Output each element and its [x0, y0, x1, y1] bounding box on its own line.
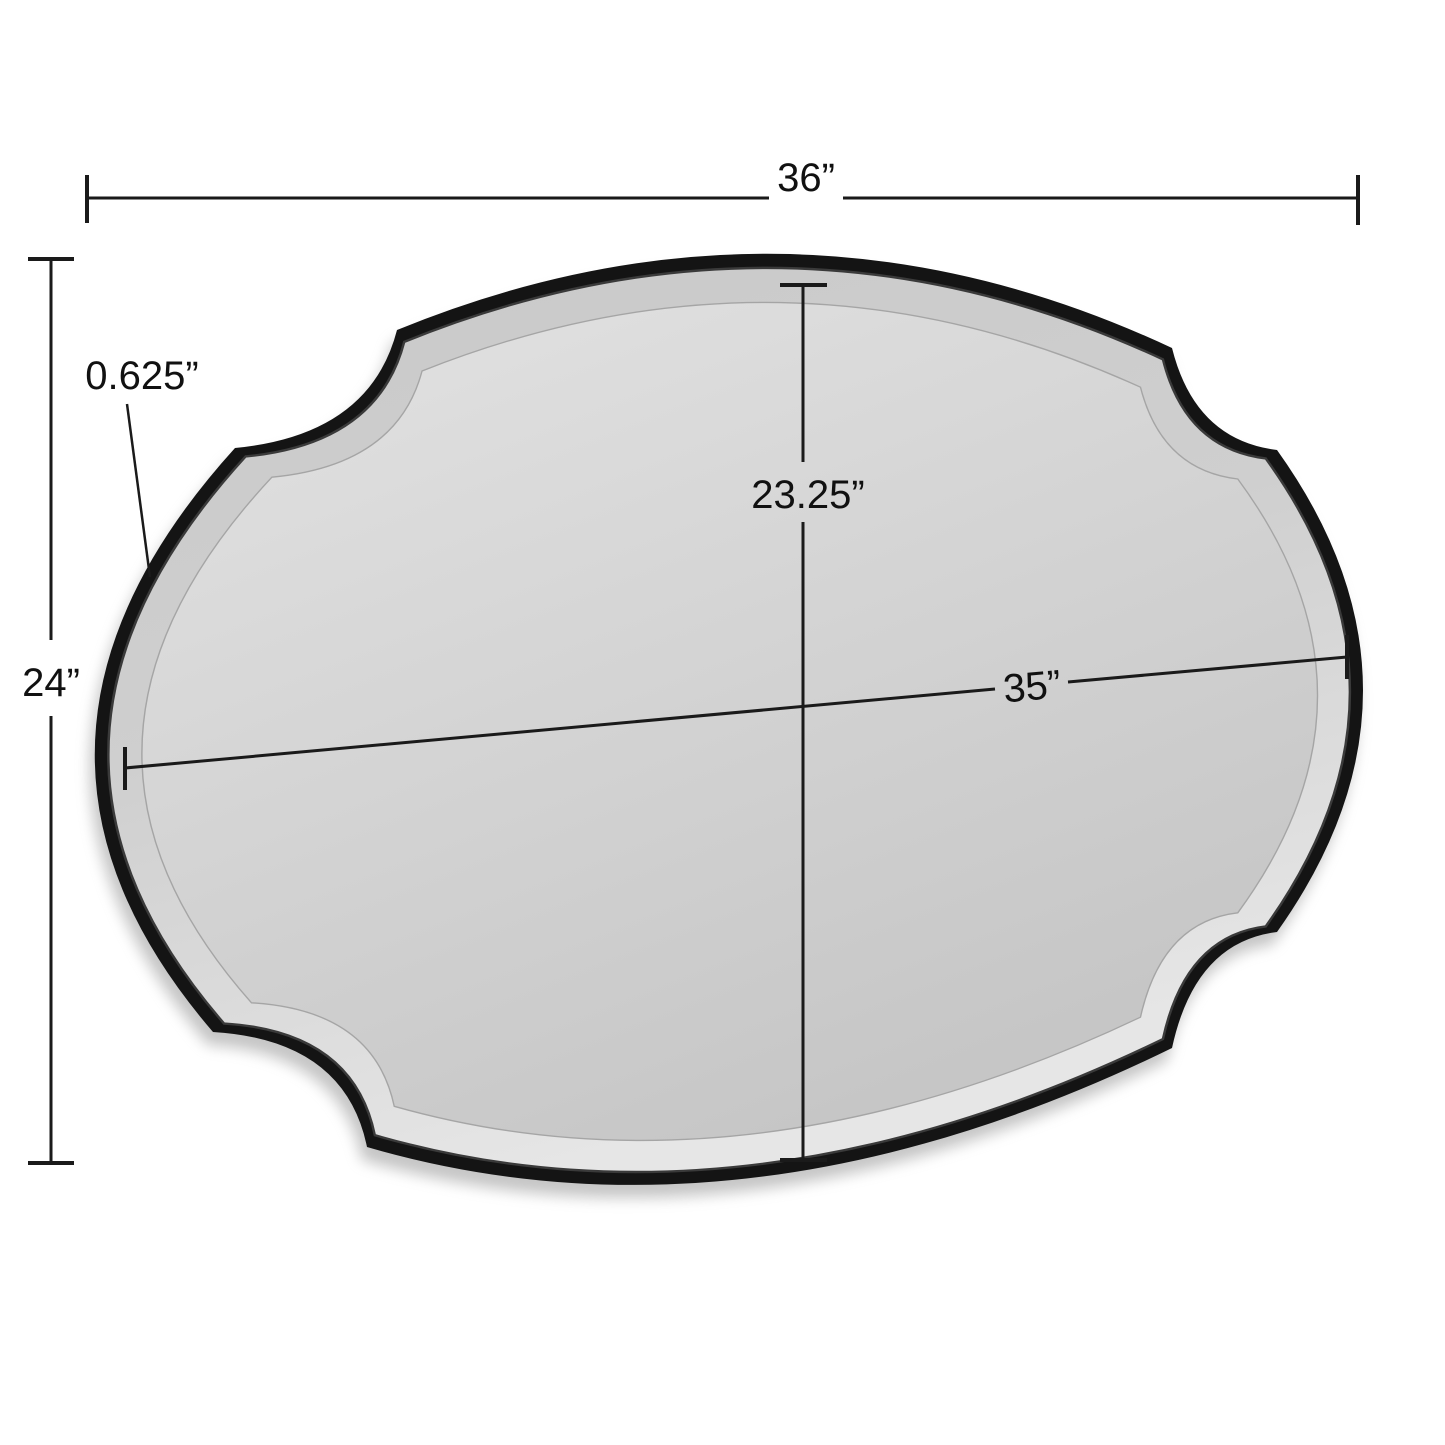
- dimension-diagram: 36” 24” 0.625” 23.25”: [0, 0, 1445, 1445]
- mirror: [90, 254, 1363, 1198]
- mirror-height-label: 23.25”: [751, 473, 864, 517]
- frame-depth-label: 0.625”: [85, 354, 198, 398]
- frame-depth-leader-line: [127, 404, 150, 577]
- overall-height-label: 24”: [22, 661, 80, 705]
- mirror-width-label: 35”: [1001, 662, 1063, 711]
- diagram-canvas: 36” 24” 0.625” 23.25”: [0, 0, 1445, 1445]
- overall-width-label: 36”: [777, 156, 835, 200]
- overall-width-dimension: 36”: [87, 156, 1358, 225]
- overall-height-dimension: 24”: [22, 259, 80, 1163]
